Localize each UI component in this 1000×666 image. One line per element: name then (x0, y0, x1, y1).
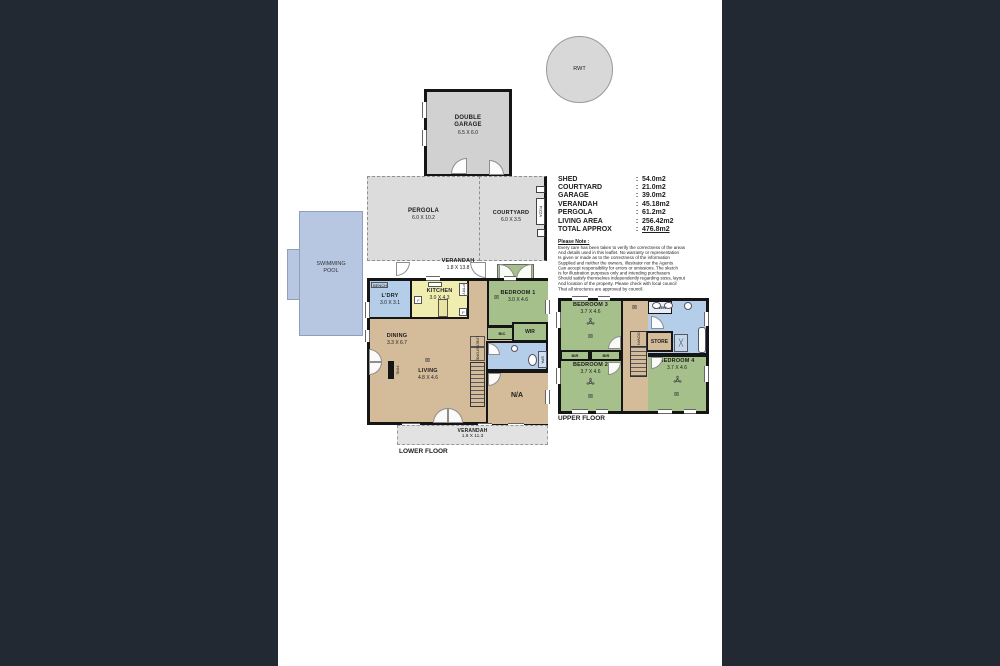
toilet (528, 354, 537, 366)
fridge: F (459, 308, 467, 316)
pizza-label: PIZZA (538, 206, 543, 217)
room-bir-right: BIR (590, 350, 621, 361)
light-icon: ⊠ (674, 392, 679, 398)
shower: ╳ (674, 334, 688, 352)
verandah-top-label: VERANDAH 1.8 X 13.8 (416, 258, 500, 271)
pantry: PTRY (459, 283, 468, 296)
rainwater-tank: RWT (546, 36, 613, 103)
light-icon: ⊠ (588, 394, 593, 400)
bench: BENCH (371, 282, 388, 288)
kitchen-island (438, 299, 448, 317)
window (426, 276, 440, 281)
verandah-bottom-label: VERANDAH 1.8 X 11.3 (397, 428, 548, 440)
closet-store: STORE (470, 347, 485, 361)
room-bir-left: BIR (560, 350, 590, 361)
area-row: LIVING AREA:256.42m2 (558, 217, 708, 225)
spa-bath: SPA (538, 351, 547, 368)
garage-window (422, 130, 427, 146)
area-row: PERGOLA:61.2m2 (558, 209, 708, 217)
pool-label: SWIMMING POOL (299, 261, 363, 274)
window (704, 366, 709, 382)
room-wir: WIR (512, 322, 548, 342)
bir-left-label: BIR (572, 353, 579, 358)
store-label: STORE (475, 347, 480, 361)
garage-window (422, 102, 427, 118)
window (572, 409, 588, 414)
bench-label: BENCH (373, 283, 387, 288)
stairs-down-label-box: DOWN (630, 331, 647, 347)
kitchen-stove (428, 282, 442, 287)
spa-label: SPA (540, 356, 545, 364)
light-icon: ⊠ (494, 295, 499, 301)
rwt-label: RWT (573, 66, 585, 73)
garage-label: DOUBLE GARAGE 6.5 X 6.0 (424, 115, 512, 136)
upper-floor-title: UPPER FLOOR (558, 415, 638, 423)
area-row-total: TOTAL APPROX:476.8m2 (558, 225, 708, 233)
laundry-label: L'DRY 3.0 X 3.1 (370, 293, 410, 306)
linen-label: LINEN (475, 336, 480, 348)
wir-label: WIR (525, 329, 535, 335)
window (545, 300, 550, 314)
dining-label: DINING 3.3 X 6.7 (372, 333, 422, 346)
room-store-upper: STORE (646, 331, 673, 352)
stairs-lower (470, 362, 485, 407)
ceiling-fan-icon (671, 374, 684, 387)
na-label: N/A (511, 392, 523, 400)
courtyard-fixture (536, 186, 545, 193)
area-row: SHED:54.0m2 (558, 175, 708, 183)
area-row: COURTYARD:21.0m2 (558, 183, 708, 191)
area-row: GARAGE:39.0m2 (558, 192, 708, 200)
window (545, 390, 550, 404)
window (504, 276, 516, 281)
fireplace-label-box: FIRE (393, 361, 401, 379)
down-label: DOWN (636, 333, 641, 346)
shower-icon: ╳ (679, 340, 683, 347)
bathtub (698, 327, 706, 353)
light-icon: ⊠ (588, 334, 593, 340)
window (658, 409, 672, 414)
fridge-label: F (462, 310, 464, 315)
pergola-label: PERGOLA 6.0 X 10.2 (367, 208, 480, 221)
pantry-label: PTRY (461, 284, 466, 295)
window (556, 368, 561, 384)
window (704, 312, 709, 326)
disclaimer: Please Note : Every care has been taken … (558, 239, 690, 328)
window (365, 330, 370, 342)
window (684, 409, 696, 414)
window (596, 409, 608, 414)
area-row: VERANDAH:45.18m2 (558, 200, 708, 208)
fire-label: FIRE (395, 365, 400, 374)
courtyard-fixture (537, 229, 545, 237)
lower-floor-title: LOWER FLOOR (399, 448, 479, 456)
room-bedroom1 (487, 281, 548, 327)
area-schedule: SHED:54.0m2 COURTYARD:21.0m2 GARAGE:39.0… (558, 175, 708, 234)
ceiling-fan-icon (584, 376, 597, 389)
courtyard-label: COURTYARD 6.0 X 3.5 (479, 210, 543, 223)
fridge: F (414, 296, 422, 304)
bir-right-label: BIR (602, 353, 609, 358)
window (365, 302, 370, 318)
living-label: LIVING 4.8 X 4.6 (404, 368, 452, 381)
store-upper-label: STORE (651, 339, 668, 345)
light-icon: ⊠ (425, 358, 430, 364)
floorplan-canvas: RWT DOUBLE GARAGE 6.5 X 6.0 PERGOLA 6.0 … (0, 0, 1000, 666)
fridge-label: F (417, 298, 419, 303)
disclaimer-lines: Every care has been taken to verify the … (558, 245, 691, 291)
pizza-oven: PIZZA (536, 198, 545, 225)
basin (511, 345, 518, 352)
bic-label: BIC (499, 331, 506, 336)
closet-linen: LINEN (470, 336, 485, 347)
